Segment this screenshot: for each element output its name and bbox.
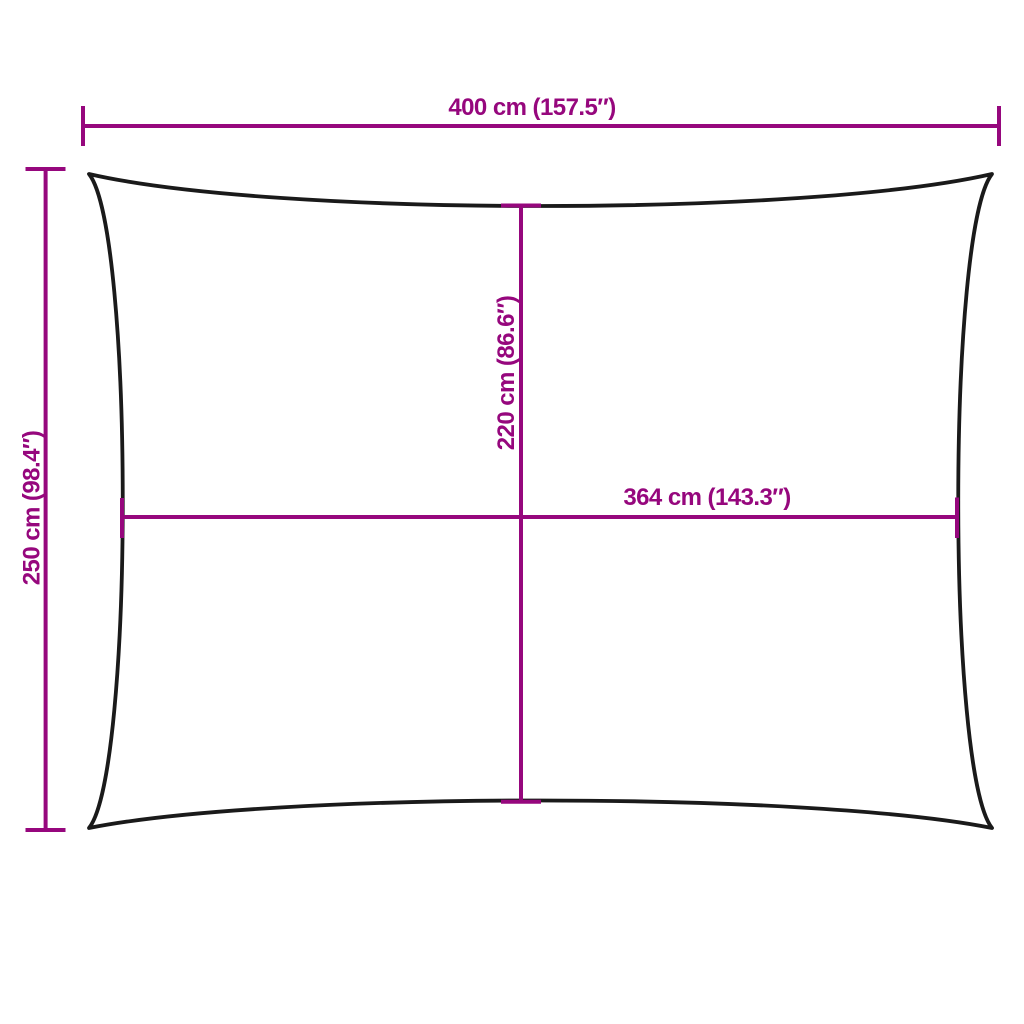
svg-text:250 cm (98.4″): 250 cm (98.4″) — [19, 431, 46, 586]
svg-text:220 cm (86.6″): 220 cm (86.6″) — [493, 296, 520, 451]
svg-text:364 cm (143.3″): 364 cm (143.3″) — [623, 484, 790, 511]
svg-text:400 cm (157.5″): 400 cm (157.5″) — [448, 94, 615, 121]
